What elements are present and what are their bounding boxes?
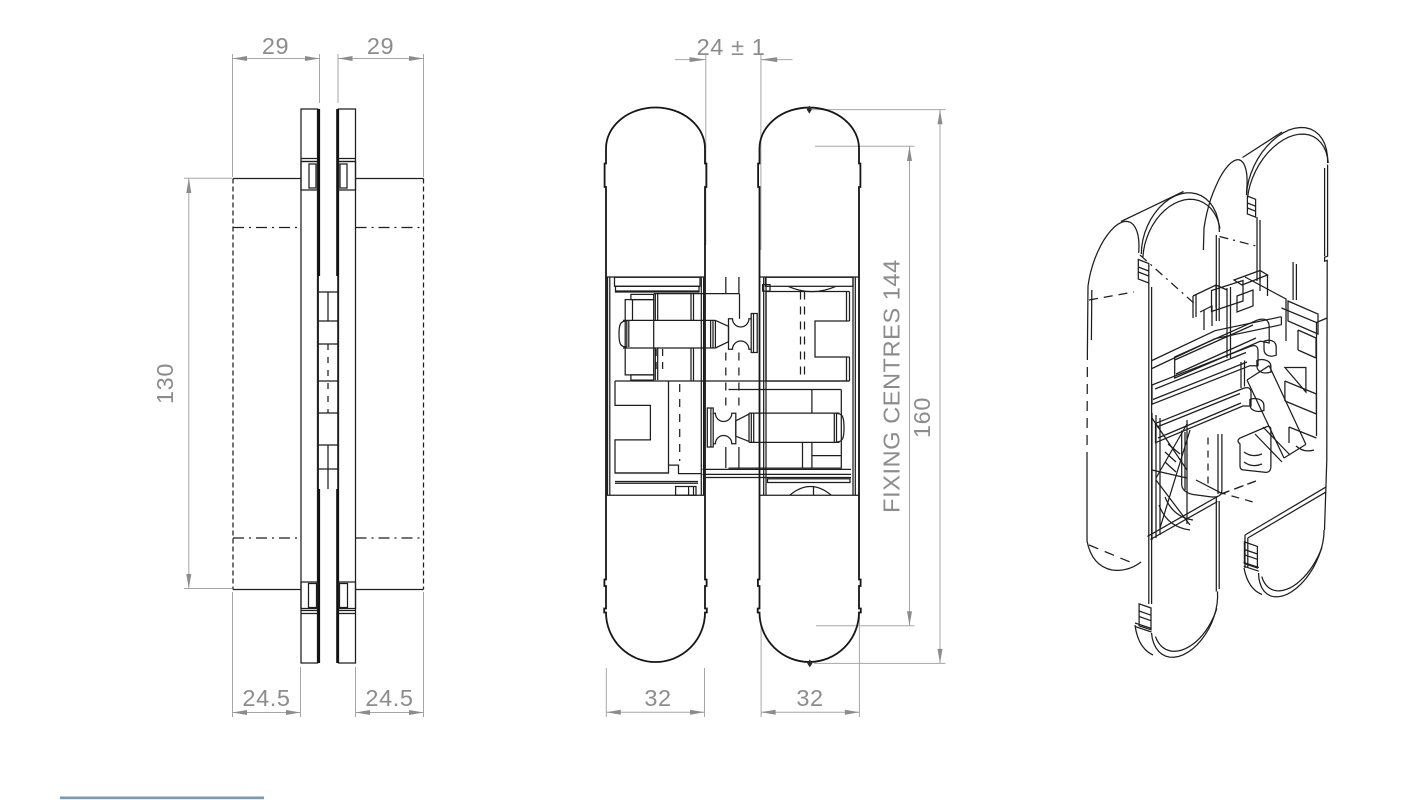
svg-text:FIXING CENTRES 144: FIXING CENTRES 144	[879, 259, 905, 513]
svg-text:29: 29	[262, 33, 289, 59]
svg-text:32: 32	[796, 685, 823, 711]
svg-text:32: 32	[644, 685, 671, 711]
svg-text:24.5: 24.5	[242, 685, 290, 711]
svg-text:130: 130	[152, 363, 178, 404]
svg-text:160: 160	[909, 397, 935, 438]
svg-text:29: 29	[367, 33, 394, 59]
svg-text:24 ± 1: 24 ± 1	[697, 34, 766, 60]
svg-text:24.5: 24.5	[365, 685, 413, 711]
